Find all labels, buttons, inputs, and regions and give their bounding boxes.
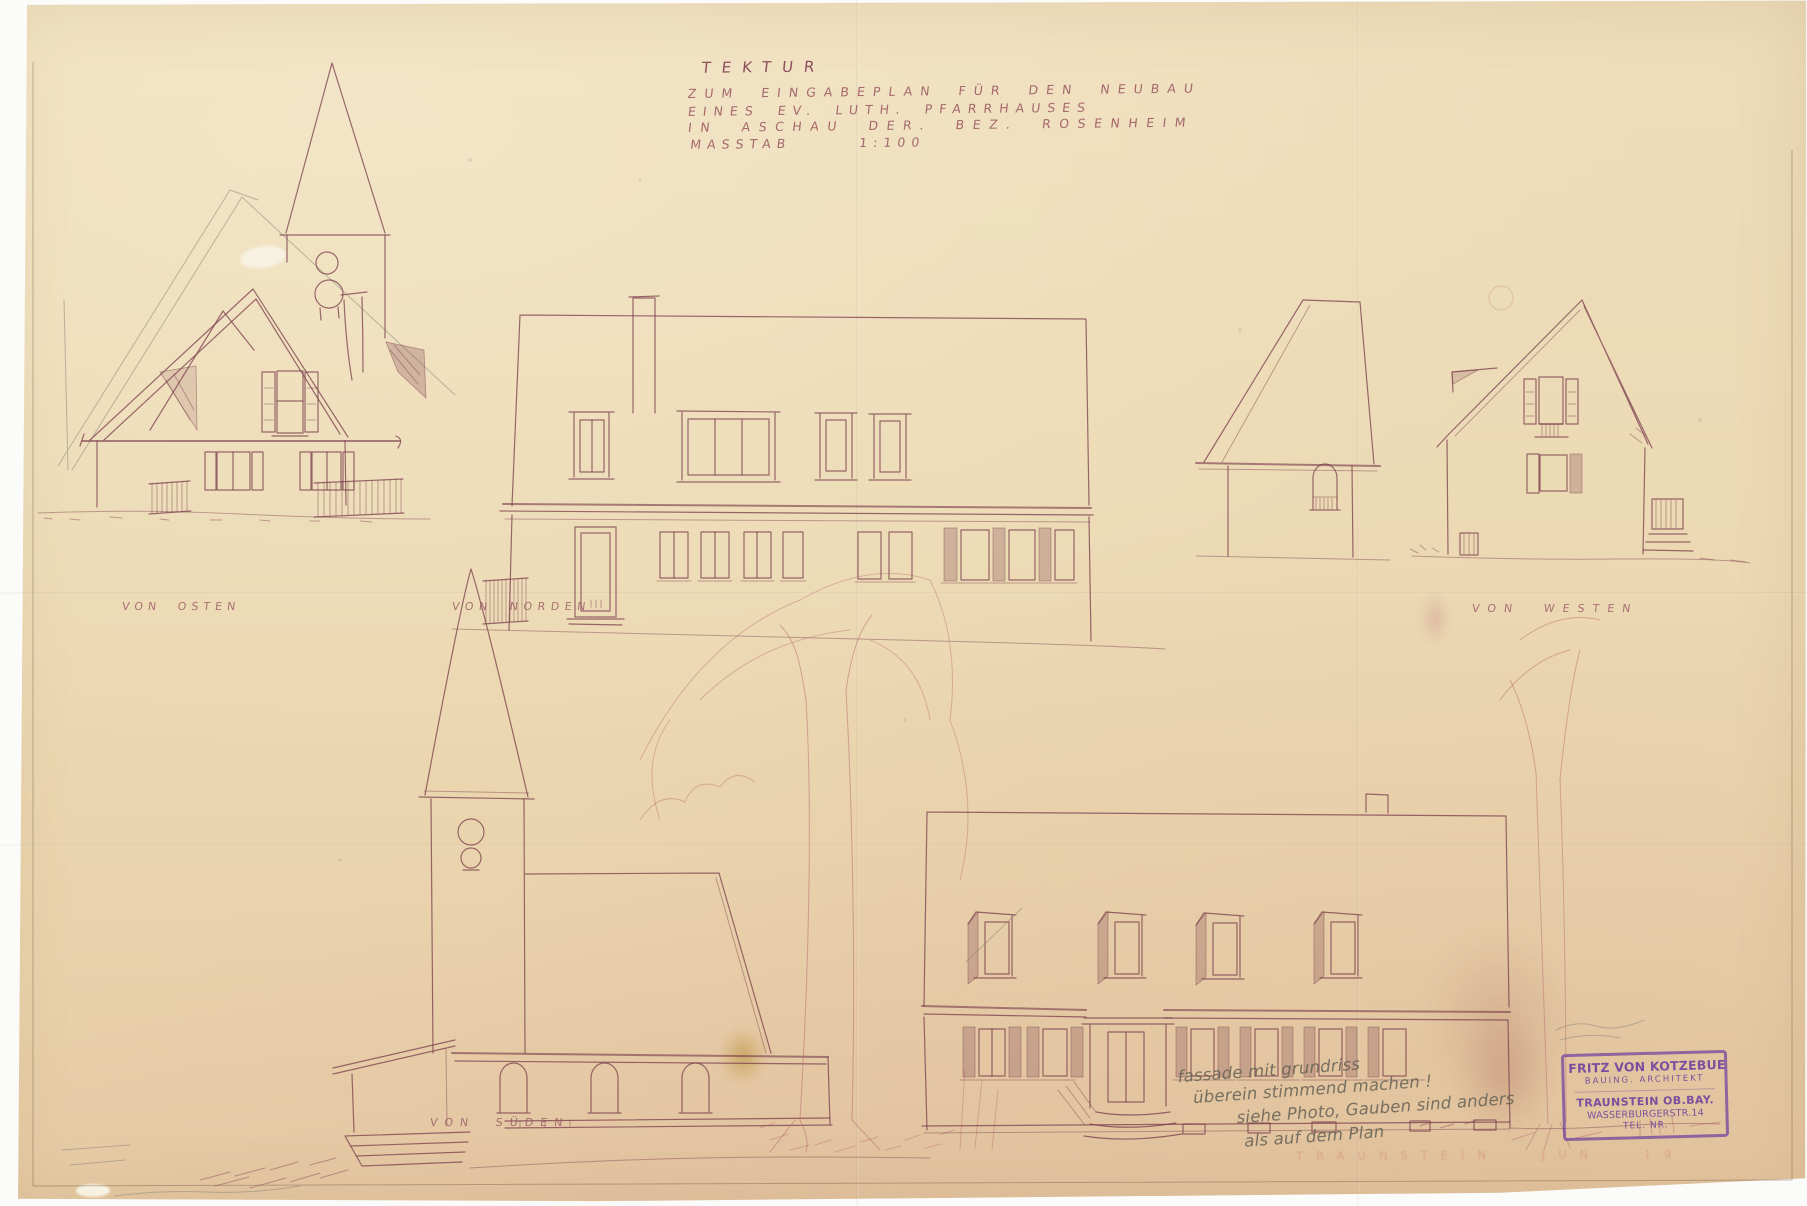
sheet-frame	[33, 62, 1792, 1186]
title-line: TEKTUR	[701, 57, 827, 76]
view-label-south: VON SÜDEN	[429, 1116, 570, 1129]
view-label-north: VON NORDEN	[451, 600, 592, 613]
right-tree-sketch	[339, 159, 1720, 1150]
west-elevation-drawing	[1196, 286, 1750, 563]
view-label-west: VON WESTEN	[1471, 602, 1639, 615]
south-elevation-church-drawing	[62, 569, 930, 1196]
tree-sketch	[640, 573, 998, 1152]
stamp-divider	[1575, 1088, 1715, 1093]
note-line: als auf dem Plan	[1244, 1122, 1385, 1151]
north-elevation-drawing	[452, 296, 1165, 649]
view-label-east: VON OSTEN	[121, 600, 241, 613]
faint-date-stamp: TRAUNSTEIN JUN 19	[1296, 1147, 1684, 1163]
scale-line: MASSTAB 1:100	[689, 134, 926, 151]
title-block: TEKTUR ZUM EINGABEPLAN FÜR DEN NEUBAU EI…	[687, 53, 1248, 169]
architect-stamp: FRITZ VON KOTZEBUE BAUING. ARCHITEKT TRA…	[1561, 1050, 1729, 1141]
title-line: ZUM EINGABEPLAN FÜR DEN NEUBAU	[687, 81, 1202, 101]
scanned-drawing-sheet: TEKTUR ZUM EINGABEPLAN FÜR DEN NEUBAU EI…	[0, 0, 1807, 1206]
east-elevation-drawing	[38, 63, 455, 522]
